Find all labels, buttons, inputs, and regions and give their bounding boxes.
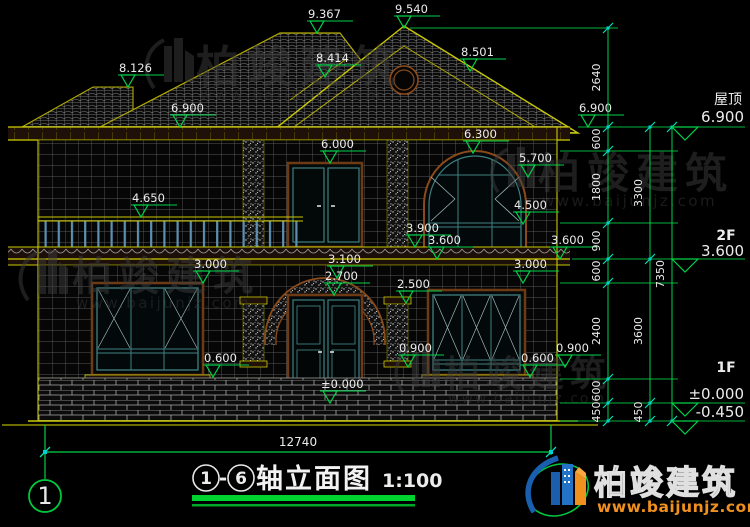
dim-chain-value: 600: [590, 261, 603, 282]
dim-chain-value: 1800: [590, 173, 603, 201]
pilaster-1f-right: [384, 297, 411, 367]
2f-level-triangle: [672, 259, 698, 272]
elevation-marker-value: 0.600: [204, 351, 237, 365]
elevation-marker-value: 8.126: [119, 61, 152, 75]
logo-name: 柏竣建筑: [594, 463, 738, 502]
dim-chain-value: 3600: [632, 317, 645, 345]
dim-chain-value: 2640: [590, 64, 603, 92]
elevation-marker-value: 6.900: [171, 101, 204, 115]
dim-node: [649, 420, 652, 423]
elevation-marker-value: 2.700: [325, 269, 358, 283]
1f-value: ±0.000: [688, 385, 744, 403]
elevation-marker-value: 8.414: [316, 51, 349, 65]
elevation-marker-value: 3.100: [328, 252, 361, 266]
dim-node: [649, 258, 652, 261]
roof-level-label: 屋顶: [714, 92, 742, 108]
title-underline-thick: [192, 495, 415, 501]
2f-value: 3.600: [701, 242, 744, 260]
dim-node: [607, 378, 610, 381]
watermark-url: www.baijunjz.com: [542, 192, 717, 210]
dim-node: [607, 282, 610, 285]
watermark-url: www.baijunjz.com: [76, 294, 251, 312]
elevation-marker-triangle: [121, 75, 135, 87]
elevation-marker-value: 9.367: [308, 7, 341, 21]
dim-chain-value: 450: [632, 402, 645, 423]
dim-chain-value: 7350: [654, 260, 667, 288]
dim-node: [607, 222, 610, 225]
watermark-url: www.baijunjz.com: [448, 391, 606, 407]
dim-chain-value: 600: [590, 381, 603, 402]
1f-level-triangle: [672, 403, 698, 416]
elevation-marker-value: 0.900: [556, 341, 589, 355]
elevation-marker-value: ±0.000: [321, 377, 364, 391]
dim-node: [607, 126, 610, 129]
dim-chain-value: 900: [590, 231, 603, 252]
dim-node: [607, 402, 610, 405]
dim-node: [607, 258, 610, 261]
level-2f: 2F 3.600: [672, 228, 744, 272]
elevation-marker-triangle: [310, 21, 324, 33]
elevation-drawing-canvas: 柏竣建筑 www.baijunjz.com 柏竣建筑 www.baijunjz.…: [0, 0, 750, 527]
elevation-marker-value: 4.500: [514, 198, 547, 212]
balcony-railing: [38, 217, 304, 247]
title-scale: 1:100: [382, 470, 442, 492]
dim-node: [607, 150, 610, 153]
elevation-marker-value: 3.600: [428, 233, 461, 247]
svg-text:6: 6: [235, 469, 247, 489]
elevation-marker-value: 4.650: [132, 191, 165, 205]
dim-chain-value: 600: [590, 129, 603, 150]
elevation-marker-value: 8.501: [461, 45, 494, 59]
elevation-marker-triangle: [581, 115, 595, 127]
elevation-marker-value: 0.900: [399, 341, 432, 355]
ground-level-triangle: [672, 421, 698, 434]
svg-text:1: 1: [200, 469, 212, 489]
dim-chain-value: 450: [590, 402, 603, 423]
elevation-marker-value: 6.900: [579, 101, 612, 115]
elevation-marker-value: 3.600: [551, 233, 584, 247]
elevation-marker-value: 6.000: [321, 137, 354, 151]
elevation-marker-value: 5.700: [519, 151, 552, 165]
watermark-url: www.baijunjz.com: [200, 86, 383, 104]
dim-node: [649, 126, 652, 129]
roof-level-value: 6.900: [701, 108, 744, 126]
logo-building-icon: [551, 472, 560, 505]
cad-elevation-screenshot: 柏竣建筑 www.baijunjz.com 柏竣建筑 www.baijunjz.…: [0, 0, 750, 527]
level-roof: 屋顶 6.900: [672, 92, 744, 140]
elevation-marker-value: 3.000: [514, 257, 547, 271]
dim-chain-value: 3300: [632, 179, 645, 207]
title-text: 轴立面图: [256, 463, 372, 495]
ground-level-value: -0.450: [696, 403, 744, 421]
dim-chain-value: 2400: [590, 317, 603, 345]
elevation-marker-value: 6.300: [464, 127, 497, 141]
right-level-labels: 屋顶 6.900 2F 3.600 1F ±0.000 -0.450: [672, 92, 744, 434]
elevation-marker-value: 2.500: [397, 277, 430, 291]
level-1f: 1F ±0.000 -0.450: [672, 360, 744, 434]
dim-node: [607, 420, 610, 423]
logo-url: www.baijunjz.com: [597, 498, 750, 516]
title-underline-thin: [192, 504, 415, 507]
overall-dim-value: 12740: [279, 435, 317, 449]
drawing-title: 1 - 6 轴立面图 1:100: [192, 463, 442, 507]
axis-bubble-number: 1: [37, 482, 52, 510]
elevation-marker-value: 0.600: [521, 351, 554, 365]
elevation-marker-value: 9.540: [395, 2, 428, 16]
brand-logo: 柏竣建筑 www.baijunjz.com: [520, 455, 750, 525]
roof-level-triangle: [672, 127, 698, 140]
title-separator: -: [219, 466, 227, 490]
dim-node: [649, 402, 652, 405]
1f-label: 1F: [716, 360, 735, 376]
elevation-marker-value: 3.000: [194, 257, 227, 271]
dim-node: [607, 27, 610, 30]
pilaster-2f-right: [387, 140, 408, 247]
